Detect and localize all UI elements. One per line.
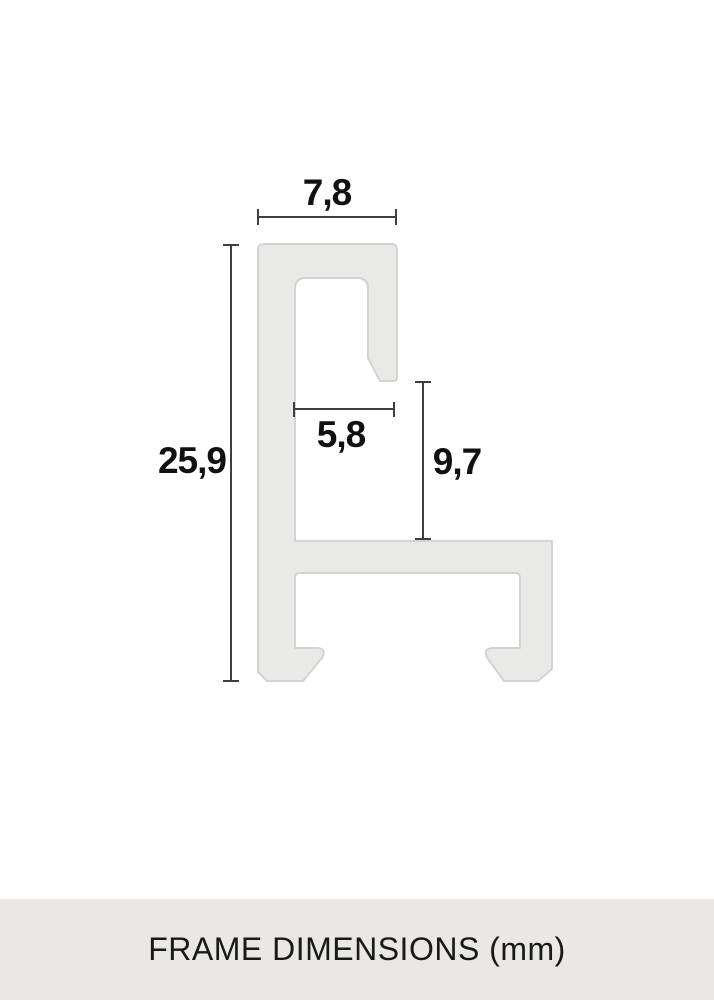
dim-top-width-label: 7,8 (303, 172, 352, 213)
profile-outline-shape (258, 244, 552, 681)
caption-bar: FRAME DIMENSIONS (mm) (0, 899, 714, 1000)
profile-cross-section-drawing: 7,8 25,9 5,8 9,7 (0, 0, 714, 899)
dim-total-height: 25,9 (158, 245, 239, 681)
caption-text: FRAME DIMENSIONS (mm) (148, 931, 566, 968)
dim-total-height-label: 25,9 (158, 440, 226, 481)
frame-profile-diagram-page: 7,8 25,9 5,8 9,7 FRAME DIMENSIONS (mm) (0, 0, 714, 1000)
dim-inner-width-label: 5,8 (317, 414, 366, 455)
dim-top-width: 7,8 (258, 172, 396, 225)
dim-inner-height: 9,7 (415, 382, 481, 539)
dim-inner-width: 5,8 (294, 402, 394, 455)
dim-inner-height-label: 9,7 (433, 441, 481, 482)
